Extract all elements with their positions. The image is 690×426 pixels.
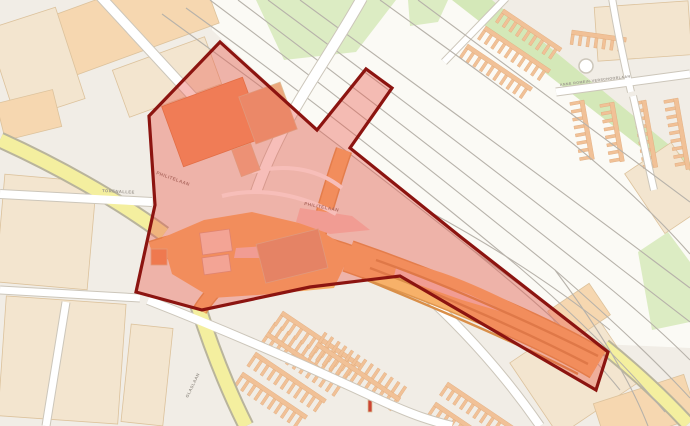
building (594, 1, 690, 61)
map-viewport[interactable]: PHILITELAANPHILITELAANTORENALLEEGLASLAAN… (0, 0, 690, 426)
map-canvas[interactable]: PHILITELAANPHILITELAANTORENALLEEGLASLAAN… (0, 0, 690, 426)
building (368, 400, 372, 412)
roundabout (579, 59, 593, 73)
